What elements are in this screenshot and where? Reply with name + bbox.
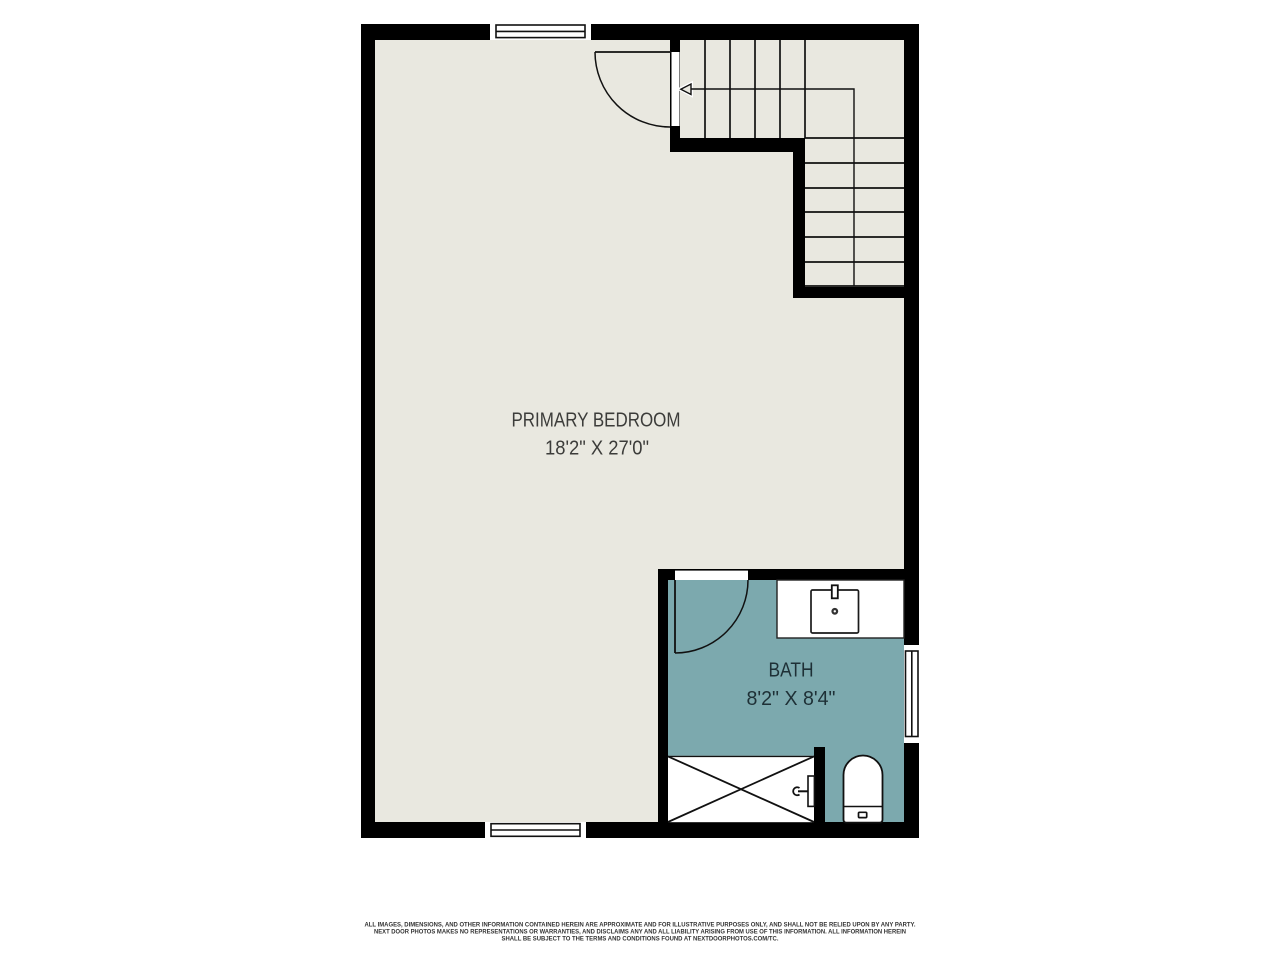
svg-text:18'2" X 27'0": 18'2" X 27'0" — [545, 438, 649, 460]
svg-text:SHALL BE SUBJECT TO THE TERMS: SHALL BE SUBJECT TO THE TERMS AND CONDIT… — [502, 936, 779, 943]
svg-text:PRIMARY BEDROOM: PRIMARY BEDROOM — [512, 410, 681, 432]
svg-text:ALL IMAGES, DIMENSIONS, AND OT: ALL IMAGES, DIMENSIONS, AND OTHER INFORM… — [365, 922, 916, 929]
svg-text:8'2" X 8'4": 8'2" X 8'4" — [747, 687, 836, 710]
svg-text:NEXT DOOR PHOTOS MAKES NO REPR: NEXT DOOR PHOTOS MAKES NO REPRESENTATION… — [374, 929, 906, 936]
svg-text:BATH: BATH — [769, 658, 814, 681]
